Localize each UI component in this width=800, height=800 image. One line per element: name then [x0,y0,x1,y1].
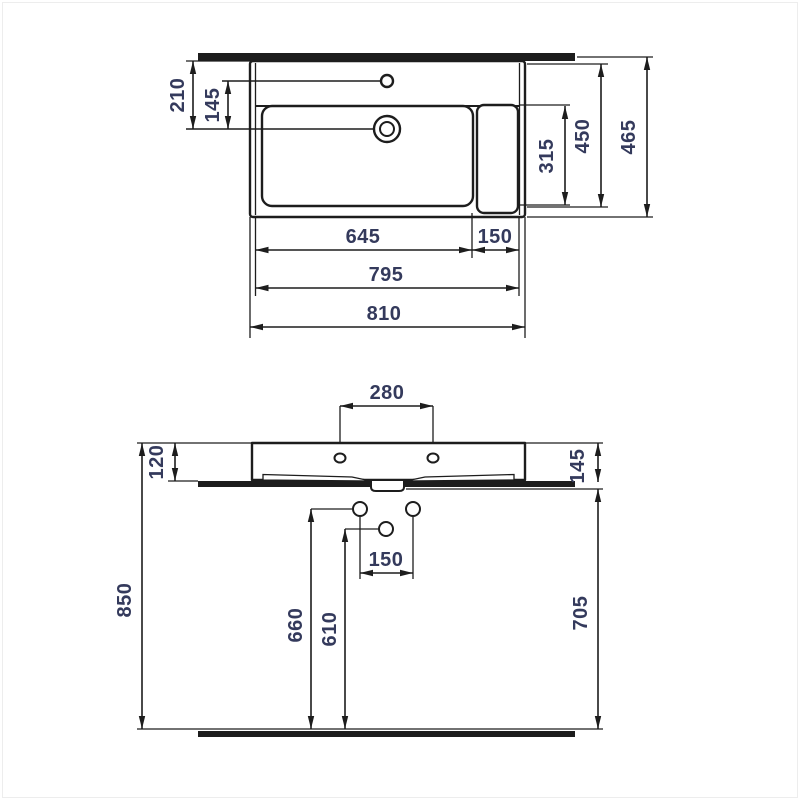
supply-point-right-icon [406,502,420,516]
faucet-hole-icon [374,116,400,142]
dim-150-top-label: 150 [478,226,513,248]
faucet-hole-front-right-icon [428,454,439,463]
dim-450-label: 450 [572,119,594,154]
dim-850-label: 850 [114,583,136,618]
washbasin-drawing: 210 145 315 450 465 645 15 [0,0,800,800]
dim-145-label: 145 [202,88,224,123]
drain-point-icon [379,522,393,536]
floor-line [198,731,575,737]
dim-705-label: 705 [570,596,592,631]
dim-645-label: 645 [346,226,381,248]
dim-280-label: 280 [370,382,405,404]
dim-465-label: 465 [618,120,640,155]
dim-795-label: 795 [369,264,404,286]
dim-660-label: 660 [285,608,307,643]
drain-notch [371,481,404,491]
side-deck-outline [477,105,518,213]
rear-hole-icon [381,75,393,87]
dim-210-label: 210 [167,78,189,113]
plan-view: 210 145 315 450 465 645 15 [167,53,653,338]
basin-front-outline [252,443,525,480]
faucet-hole-front-left-icon [335,454,346,463]
supply-point-left-icon [353,502,367,516]
front-view: 280 120 850 145 70 [114,382,603,737]
dim-145-right-label: 145 [567,449,589,484]
bowl-outline [262,106,473,206]
dim-315-label: 315 [536,139,558,174]
dim-120-label: 120 [146,445,168,480]
wall-line-left [198,481,371,487]
dim-610-label: 610 [319,612,341,647]
dim-150-bottom-label: 150 [369,549,404,571]
dim-810-label: 810 [367,303,402,325]
technical-drawing-page: 210 145 315 450 465 645 15 [0,0,800,800]
wall-line-right [404,481,575,487]
